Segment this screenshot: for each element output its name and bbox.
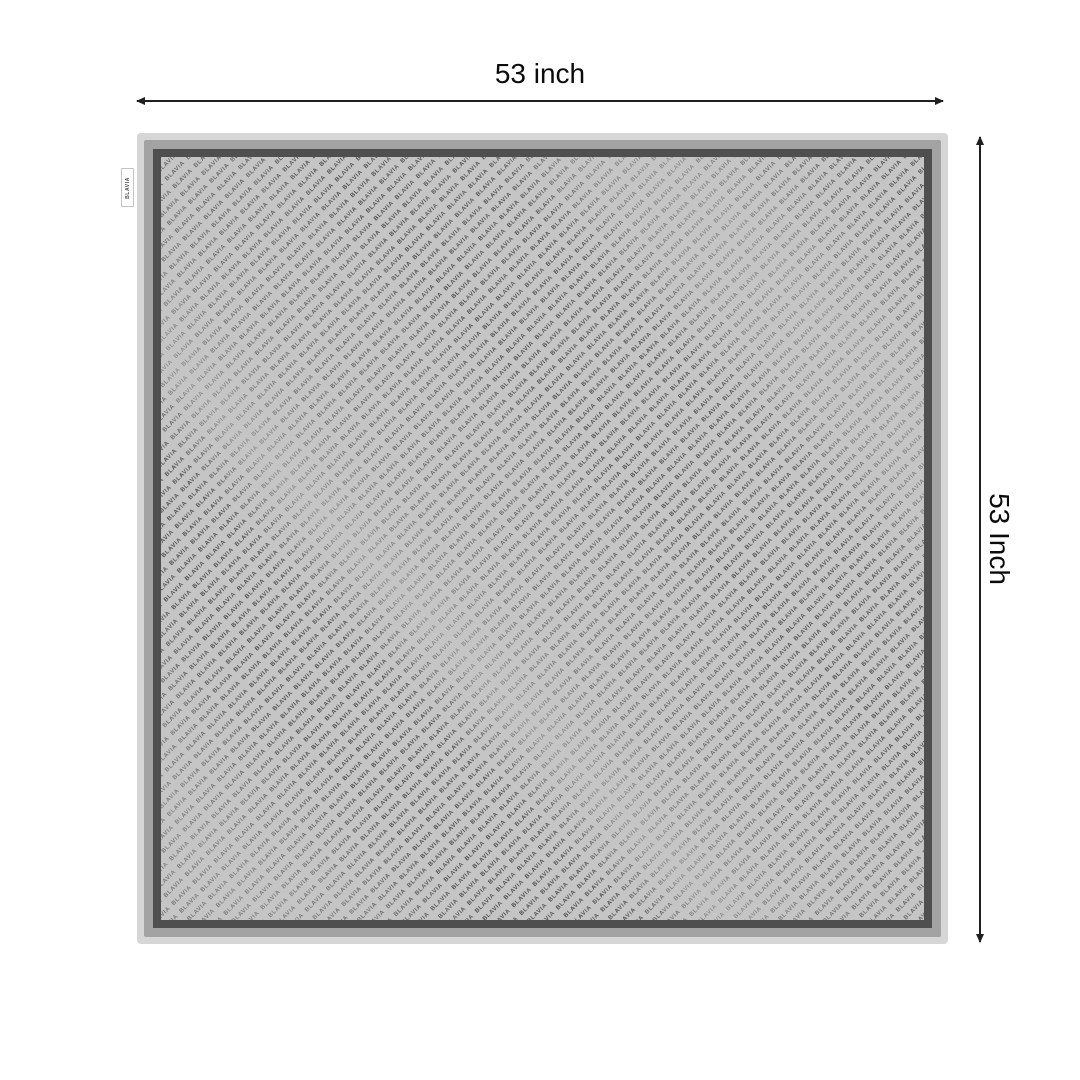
brand-tag: BLAVIA [121,168,134,207]
arrow-down-icon [976,934,984,943]
height-dimension-line [979,137,981,942]
scarf-border-dark: BLAVIA BLAVIA BLAVIA BLAVIA BLAVIA BLAVI… [153,149,932,928]
width-dimension-label: 53 inch [137,58,943,90]
scarf-fabric: BLAVIA BLAVIA BLAVIA BLAVIA BLAVIA BLAVI… [161,157,924,920]
product-scarf: BLAVIA BLAVIA BLAVIA BLAVIA BLAVIA BLAVI… [137,133,948,944]
product-dimension-diagram: 53 inch 53 Inch BLAVIA BLAVIA BLAVIA BLA… [0,0,1080,1080]
scarf-border-mid: BLAVIA BLAVIA BLAVIA BLAVIA BLAVIA BLAVI… [144,140,941,937]
arrow-right-icon [935,97,944,105]
arrow-up-icon [976,136,984,145]
height-dimension-label: 53 Inch [983,493,1015,585]
width-dimension-line [137,100,943,102]
brand-tag-label: BLAVIA [125,177,131,199]
fabric-pattern-text: BLAVIA BLAVIA BLAVIA BLAVIA BLAVIA BLAVI… [161,157,924,920]
arrow-left-icon [136,97,145,105]
